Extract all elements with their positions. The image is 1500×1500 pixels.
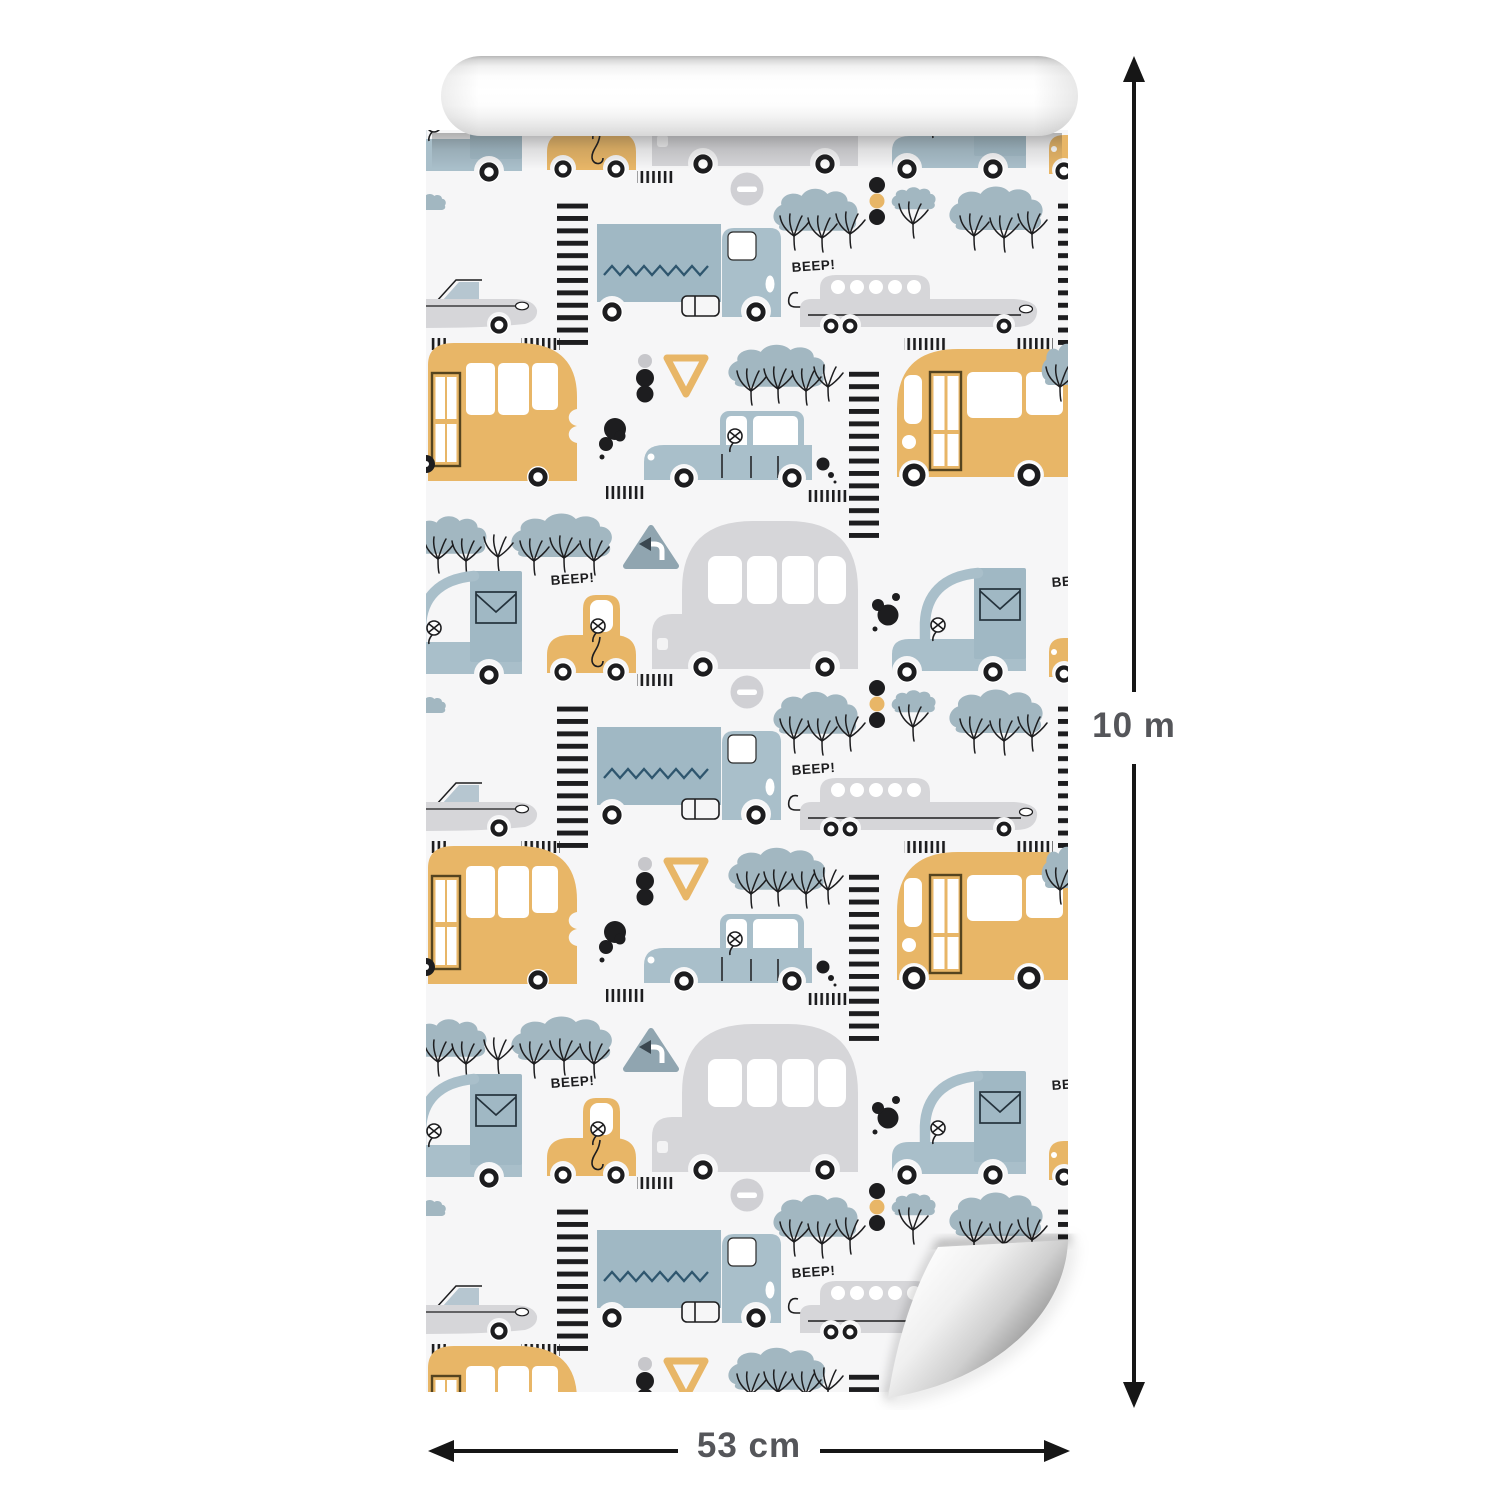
product-image: BEEP! BEEP! BEEP! [0,0,1500,1500]
dimension-line [820,1449,1048,1453]
width-dimension-label: 53 cm [697,1426,801,1466]
height-dimension-arrow: 10 m [1121,56,1147,1408]
arrow-down-icon [1123,1382,1145,1408]
pattern-tile [426,1346,1068,1392]
dimension-line [450,1449,678,1453]
arrow-right-icon [1044,1440,1070,1462]
pattern-tile [426,343,1068,853]
wallpaper-roll-top [441,56,1078,136]
dimension-line [1132,78,1136,692]
height-dimension-label: 10 m [1092,706,1176,746]
pattern-tile [426,846,1068,1356]
dimension-line [1132,764,1136,1382]
wallpaper-sheet: BEEP! BEEP! BEEP! [426,130,1068,1392]
width-dimension-arrow: 53 cm [428,1436,1070,1466]
pattern-tile [426,130,1068,350]
traffic-pattern: BEEP! BEEP! BEEP! [426,130,1068,1392]
